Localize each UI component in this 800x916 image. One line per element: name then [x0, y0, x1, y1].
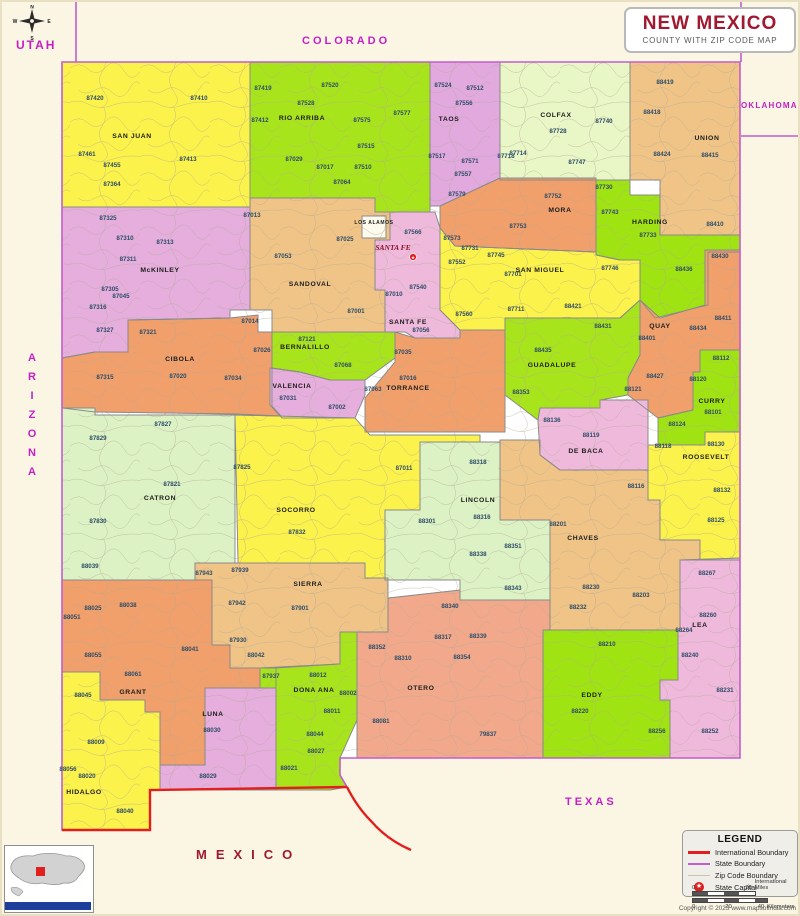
- zip-label: 88430: [711, 253, 729, 260]
- zip-label: 87825: [233, 464, 251, 471]
- zip-label: 88419: [656, 79, 674, 86]
- zip-label: 87512: [466, 85, 484, 92]
- zip-label: 88021: [280, 765, 298, 772]
- zip-label: 87327: [96, 327, 114, 334]
- international-boundary: [347, 787, 411, 850]
- zip-label: 88410: [706, 221, 724, 228]
- zip-label: 87821: [163, 481, 181, 488]
- county-label: GRANT: [119, 689, 146, 696]
- zip-label: 88338: [469, 551, 487, 558]
- zip-label: 88411: [715, 315, 732, 322]
- zip-label: 88020: [78, 773, 96, 780]
- zip-label: 87011: [396, 465, 413, 472]
- oklahoma-label: OKLAHOMA: [741, 101, 798, 110]
- zip-label: 87733: [639, 232, 657, 239]
- county-label: ROOSEVELT: [683, 454, 730, 461]
- zip-label: 87746: [601, 265, 619, 272]
- county-label: CIBOLA: [165, 356, 195, 363]
- zip-label: 87410: [190, 95, 208, 102]
- zip-label: 88343: [504, 585, 522, 592]
- zip-label: 88256: [648, 728, 666, 735]
- legend-line-swatch: [688, 851, 710, 854]
- zip-label: 88415: [701, 152, 719, 159]
- zip-label: 87747: [568, 159, 586, 166]
- county-label: LEA: [692, 622, 707, 629]
- county-label: LOS ALAMOS: [354, 220, 393, 226]
- county-label: SANDOVAL: [289, 281, 331, 288]
- zip-label: 79837: [479, 731, 497, 738]
- zip-label: 87063: [364, 386, 382, 393]
- zip-label: 87556: [455, 100, 473, 107]
- scale-miles-unit: International Miles: [755, 879, 798, 891]
- zip-label: 88081: [372, 718, 390, 725]
- zip-label: 87419: [254, 85, 272, 92]
- zip-label: 88318: [469, 459, 487, 466]
- zip-label: 87930: [229, 637, 247, 644]
- zip-label: 88051: [63, 614, 81, 621]
- zip-label: 88101: [704, 409, 722, 416]
- zip-label: 88352: [368, 644, 386, 651]
- mexico-label: MEXICO: [196, 847, 301, 862]
- map-title-box: NEW MEXICO COUNTY WITH ZIP CODE MAP: [624, 7, 796, 53]
- capital-city-label: SANTA FE: [375, 243, 410, 252]
- zip-label: 88353: [512, 389, 530, 396]
- zip-label: 88351: [504, 543, 522, 550]
- zip-label: 88009: [87, 739, 105, 746]
- zip-label: 88435: [534, 347, 552, 354]
- zip-label: 88011: [324, 708, 341, 715]
- zip-label: 87017: [316, 164, 334, 171]
- legend-title: LEGEND: [688, 834, 792, 845]
- zip-label: 87730: [595, 184, 613, 191]
- zip-label: 87455: [103, 162, 121, 169]
- zip-label: 87420: [86, 95, 104, 102]
- us-locator-map: [5, 846, 91, 910]
- zip-label: 87711: [508, 306, 525, 313]
- zip-label: 88042: [247, 652, 265, 659]
- zip-label: 88431: [594, 323, 612, 330]
- zip-label: 88317: [434, 634, 452, 641]
- zip-label: 87740: [595, 118, 613, 125]
- zip-label: 87001: [347, 308, 365, 315]
- county-label: SANTA FE: [389, 319, 427, 326]
- us-locator-inset: [4, 845, 94, 913]
- zip-label: 87943: [195, 570, 213, 577]
- zip-label: 88025: [84, 605, 102, 612]
- zip-label: 88252: [701, 728, 719, 735]
- compass-w: W: [13, 19, 18, 25]
- zip-label: 87013: [243, 212, 261, 219]
- zip-label: 87745: [487, 252, 505, 259]
- zip-label: 88434: [689, 325, 707, 332]
- zip-label: 88124: [668, 421, 686, 428]
- county-label: HIDALGO: [66, 789, 102, 796]
- zip-label: 87528: [297, 100, 315, 107]
- zip-label: 87517: [428, 153, 446, 160]
- zip-label: 87520: [321, 82, 339, 89]
- zip-label: 88027: [307, 748, 325, 755]
- zip-label: 88264: [675, 627, 693, 634]
- map-title: NEW MEXICO: [630, 14, 790, 34]
- zip-label: 88055: [84, 652, 102, 659]
- zip-label: 88132: [713, 487, 731, 494]
- zip-label: 87901: [291, 605, 309, 612]
- zip-label: 87829: [89, 435, 107, 442]
- legend-line-swatch: [688, 863, 710, 865]
- zip-label: 87939: [231, 567, 249, 574]
- zip-label: 87827: [154, 421, 172, 428]
- copyright-text: Copyright © 2023 www.mapsofindia.com: [679, 905, 796, 912]
- zip-label: 88340: [441, 603, 459, 610]
- zip-label: 87718: [497, 153, 515, 160]
- zip-label: 87020: [169, 373, 187, 380]
- county-label: LUNA: [202, 711, 223, 718]
- map-subtitle: COUNTY WITH ZIP CODE MAP: [630, 36, 790, 45]
- zip-label: 87310: [116, 235, 134, 242]
- zip-label: 88231: [716, 687, 734, 694]
- legend-item-label: State Boundary: [715, 859, 765, 868]
- zip-label: 88260: [699, 612, 717, 619]
- texas-label: TEXAS: [565, 796, 617, 808]
- zip-label: 87029: [285, 156, 303, 163]
- zip-label: 88030: [203, 727, 221, 734]
- zip-label: 88061: [124, 671, 142, 678]
- zip-label: 88116: [628, 483, 645, 490]
- county-label: LINCOLN: [461, 497, 495, 504]
- county-label: McKINLEY: [140, 267, 179, 274]
- zip-label: 87577: [393, 110, 411, 117]
- zip-label: 88040: [116, 808, 134, 815]
- zip-label: 87025: [336, 236, 354, 243]
- compass-e: E: [47, 19, 51, 25]
- zip-label: 87557: [454, 171, 472, 178]
- county-label: CHAVES: [567, 535, 598, 542]
- scale-miles-20: 20: [745, 885, 751, 891]
- zip-label: 87942: [228, 600, 246, 607]
- inset-bottom-bar: [5, 902, 91, 910]
- zip-label: 88002: [339, 690, 357, 697]
- zip-label: 88125: [707, 517, 725, 524]
- arizona-label: ARIZONA: [26, 352, 38, 472]
- zip-label: 88427: [646, 373, 664, 380]
- zip-label: 87524: [434, 82, 452, 89]
- zip-label: 88044: [306, 731, 324, 738]
- zip-label: 88118: [655, 443, 672, 450]
- zip-label: 87056: [412, 327, 430, 334]
- zip-label: 87045: [112, 293, 130, 300]
- county-label: OTERO: [407, 685, 434, 692]
- zip-label: 88201: [549, 521, 567, 528]
- zip-label: 87068: [334, 362, 352, 369]
- zip-label: 88310: [394, 655, 412, 662]
- zip-label: 87573: [443, 235, 461, 242]
- county-label: HARDING: [632, 219, 668, 226]
- compass-n: N: [30, 5, 34, 11]
- county-label: SAN JUAN: [112, 133, 152, 140]
- county-label: COLFAX: [540, 112, 571, 119]
- zip-label: 87752: [544, 193, 562, 200]
- zip-label: 87002: [328, 404, 346, 411]
- zip-label: 88220: [571, 708, 589, 715]
- alaska-outline: [11, 887, 23, 896]
- zip-label: 87510: [354, 164, 372, 171]
- county-label: UNION: [695, 135, 720, 142]
- compass-s: S: [30, 36, 34, 41]
- new-mexico-map: 874208741087461874558741387364SAN JUAN87…: [0, 0, 800, 916]
- zip-label: 88136: [543, 417, 561, 424]
- legend-line-swatch: [688, 875, 710, 876]
- county-label: TAOS: [439, 116, 460, 123]
- zip-label: 88421: [564, 303, 582, 310]
- compass-icon: N E S W: [12, 5, 52, 41]
- zip-label: 88056: [59, 766, 77, 773]
- zip-label: 87579: [448, 191, 466, 198]
- zip-label: 87461: [78, 151, 96, 158]
- legend-item: State Boundary: [688, 859, 792, 868]
- zip-label: 87321: [139, 329, 157, 336]
- county-label: EDDY: [581, 692, 602, 699]
- zip-label: 88119: [583, 432, 600, 439]
- zip-label: 87552: [448, 259, 466, 266]
- zip-label: 87571: [461, 158, 479, 165]
- zipcode-boundaries-texture: [62, 62, 740, 830]
- zip-label: 88240: [681, 652, 699, 659]
- zip-label: 87731: [461, 245, 479, 252]
- zip-label: 87035: [394, 349, 412, 356]
- zip-label: 87014: [241, 318, 259, 325]
- county-label: SIERRA: [293, 581, 322, 588]
- zip-label: 88121: [624, 386, 642, 393]
- zip-label: 88301: [418, 518, 436, 525]
- county-label: DE BACA: [568, 448, 603, 455]
- zip-label: 88041: [181, 646, 199, 653]
- zip-label: 87937: [262, 673, 280, 680]
- county-label: CURRY: [699, 398, 726, 405]
- zip-label: 88012: [309, 672, 327, 679]
- zip-label: 87010: [385, 291, 403, 298]
- county-label: SAN MIGUEL: [516, 267, 565, 274]
- zip-label: 87325: [99, 215, 117, 222]
- zip-label: 87412: [251, 117, 269, 124]
- county-label: DONA ANA: [294, 687, 335, 694]
- county-label: MORA: [548, 207, 571, 214]
- zip-label: 87753: [509, 223, 527, 230]
- zip-label: 88339: [469, 633, 487, 640]
- zip-label: 87315: [96, 374, 114, 381]
- zip-label: 88112: [713, 355, 730, 362]
- zip-label: 88418: [643, 109, 661, 116]
- colorado-label: COLORADO: [302, 35, 390, 47]
- zip-label: 87832: [288, 529, 306, 536]
- zip-label: 87540: [409, 284, 427, 291]
- zip-label: 87016: [399, 375, 417, 382]
- zip-label: 87830: [89, 518, 107, 525]
- scale-miles-bar: [692, 891, 756, 896]
- scale-miles-0: 0: [692, 885, 695, 891]
- county-label: VALENCIA: [272, 383, 311, 390]
- legend-item-label: International Boundary: [715, 848, 788, 857]
- zip-label: 87311: [120, 256, 137, 263]
- zip-label: 88354: [453, 654, 471, 661]
- zip-label: 88039: [81, 563, 99, 570]
- county-label: BERNALILLO: [280, 344, 330, 351]
- zip-label: 88130: [707, 441, 725, 448]
- zip-label: 88232: [569, 604, 587, 611]
- zip-label: 87560: [455, 311, 473, 318]
- new-mexico-highlight: [36, 867, 45, 876]
- zip-label: 87566: [404, 229, 422, 236]
- county-label: SOCORRO: [276, 507, 315, 514]
- zip-label: 88038: [119, 602, 137, 609]
- zip-label: 88210: [598, 641, 616, 648]
- zip-label: 87305: [101, 286, 119, 293]
- zip-label: 88029: [199, 773, 217, 780]
- zip-label: 88045: [74, 692, 92, 699]
- zip-label: 88436: [675, 266, 693, 273]
- zip-label: 87053: [274, 253, 292, 260]
- zip-label: 87313: [156, 239, 174, 246]
- zip-label: 87728: [549, 128, 567, 135]
- zip-label: 87743: [601, 209, 619, 216]
- zip-label: 88401: [638, 335, 656, 342]
- zip-label: 88120: [689, 376, 707, 383]
- zip-label: 87364: [103, 181, 121, 188]
- zip-label: 88316: [473, 514, 491, 521]
- zip-label: 87064: [333, 179, 351, 186]
- county-label: QUAY: [649, 323, 670, 330]
- zip-label: 87031: [279, 395, 297, 402]
- zip-label: 87316: [89, 304, 107, 311]
- legend-item: International Boundary: [688, 848, 792, 857]
- zip-label: 87034: [224, 375, 242, 382]
- us-outline: [11, 853, 85, 884]
- county-label: CATRON: [144, 495, 176, 502]
- zip-label: 87026: [253, 347, 271, 354]
- county-label: TORRANCE: [386, 385, 429, 392]
- county-label: RIO ARRIBA: [279, 115, 325, 122]
- zip-label: 87413: [179, 156, 197, 163]
- zip-label: 87121: [298, 336, 316, 343]
- zip-label: 88203: [632, 592, 650, 599]
- zip-label: 88267: [698, 570, 716, 577]
- zip-label: 87575: [353, 117, 371, 124]
- zip-label: 87515: [357, 143, 375, 150]
- county-label: GUADALUPE: [528, 362, 576, 369]
- zip-label: 88424: [653, 151, 671, 158]
- zip-label: 88230: [582, 584, 600, 591]
